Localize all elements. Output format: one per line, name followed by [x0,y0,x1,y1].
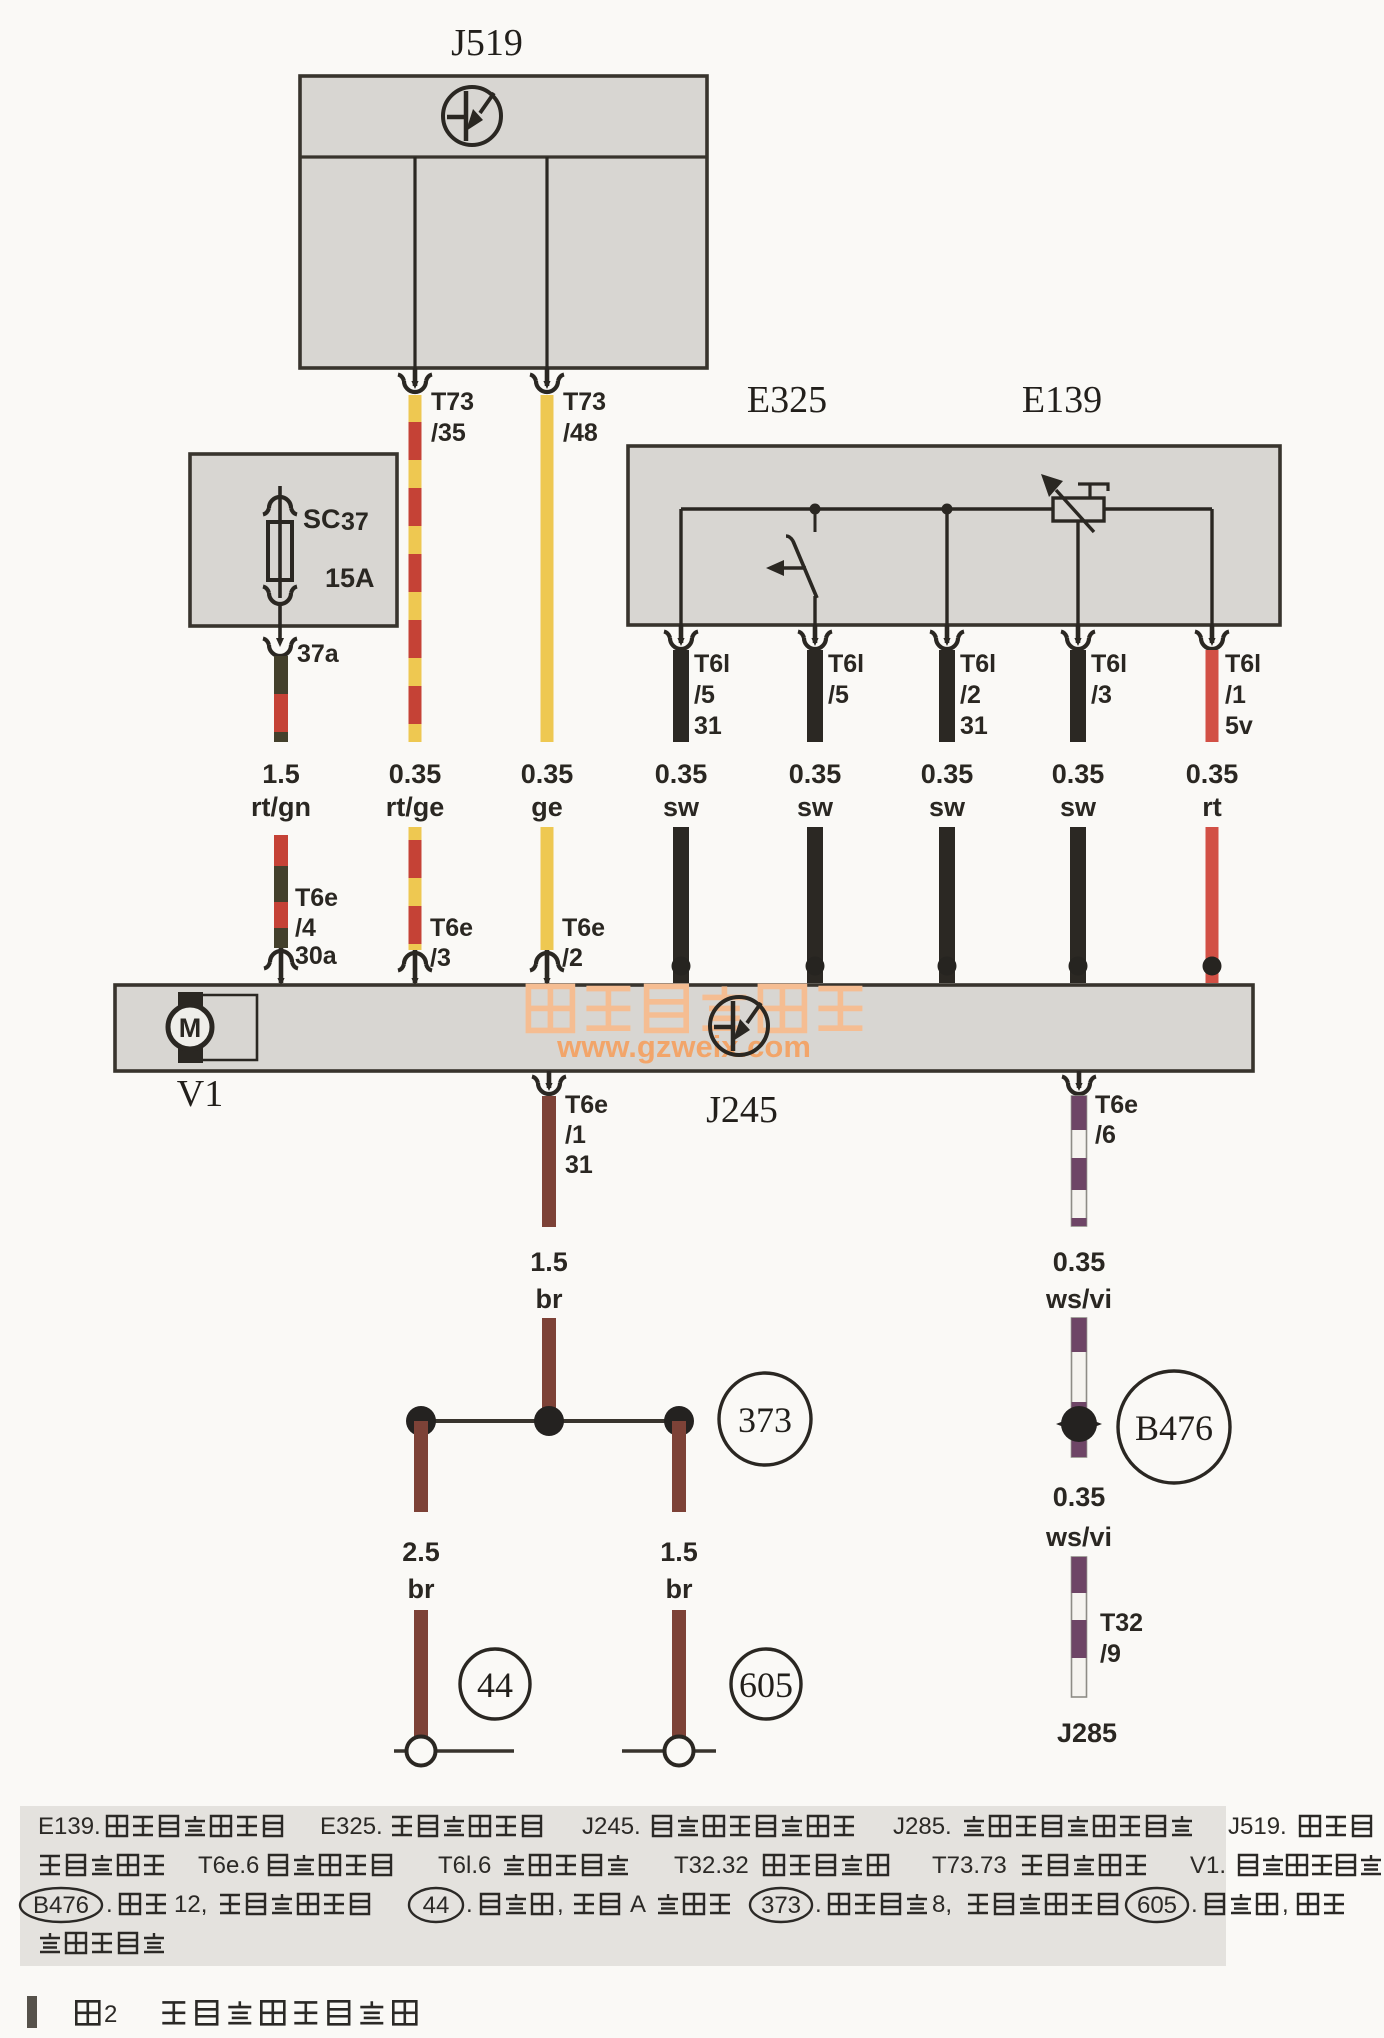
svg-text:sw: sw [663,792,700,822]
svg-text:rt/gn: rt/gn [251,792,311,822]
svg-text:T6l: T6l [1091,650,1127,678]
svg-text:1.5: 1.5 [660,1537,698,1567]
svg-text:T6e: T6e [430,914,473,942]
svg-text:T6e: T6e [562,914,605,942]
svg-text:0.35: 0.35 [1053,1247,1106,1277]
svg-text:T6l: T6l [960,650,996,678]
svg-text:B476: B476 [1135,1408,1213,1448]
svg-text:373: 373 [738,1400,792,1440]
svg-text:V1.: V1. [1190,1852,1226,1879]
svg-text:sw: sw [929,792,966,822]
svg-text:ws/vi: ws/vi [1045,1522,1112,1552]
svg-text:31: 31 [960,712,988,740]
svg-text:44: 44 [477,1665,513,1705]
svg-text:E325: E325 [747,379,827,421]
svg-text:T32: T32 [1100,1609,1143,1637]
svg-text:rt: rt [1202,792,1222,822]
svg-text:37a: 37a [297,640,340,668]
svg-text:rt/ge: rt/ge [386,792,445,822]
svg-text:0.35: 0.35 [655,759,708,789]
svg-text:5v: 5v [1225,712,1253,740]
svg-text:E325.: E325. [320,1813,383,1840]
svg-text:T32.32: T32.32 [674,1852,749,1879]
svg-text:/35: /35 [431,419,466,447]
svg-text:373: 373 [761,1892,801,1919]
svg-text:,: , [1282,1891,1289,1918]
svg-text:,: , [557,1891,564,1918]
svg-text:/2: /2 [960,681,981,709]
svg-text:www.gzweix.com: www.gzweix.com [556,1029,811,1064]
svg-text:ge: ge [531,792,563,822]
svg-text:0.35: 0.35 [1052,759,1105,789]
svg-text:.: . [106,1891,113,1918]
svg-text:0.35: 0.35 [521,759,574,789]
svg-text:V1: V1 [177,1073,223,1115]
svg-text:J519: J519 [451,22,523,64]
svg-text:/2: /2 [562,944,583,972]
svg-text:2: 2 [104,2001,117,2028]
svg-text:br: br [408,1574,435,1604]
svg-text:/48: /48 [563,419,598,447]
svg-text:T6l: T6l [1225,650,1261,678]
svg-text:0.35: 0.35 [1186,759,1239,789]
svg-text:30a: 30a [295,942,338,970]
svg-text:/3: /3 [430,944,451,972]
svg-text:/1: /1 [565,1121,586,1149]
svg-text:/4: /4 [295,914,316,942]
svg-text:T6e: T6e [295,884,338,912]
svg-text:37: 37 [341,508,369,536]
svg-text:2.5: 2.5 [402,1537,440,1567]
svg-text:T6l: T6l [694,650,730,678]
svg-text:J285: J285 [1057,1718,1117,1748]
svg-text:31: 31 [694,712,722,740]
svg-text:T73: T73 [563,388,606,416]
svg-text:1.5: 1.5 [262,759,300,789]
svg-text:br: br [536,1284,563,1314]
svg-text:sw: sw [1060,792,1097,822]
svg-text:sw: sw [797,792,834,822]
svg-text:0.35: 0.35 [1053,1482,1106,1512]
svg-text:8,: 8, [932,1891,952,1918]
svg-text:T73.73: T73.73 [932,1852,1007,1879]
svg-text:.: . [1191,1891,1198,1918]
svg-text:15A: 15A [325,563,375,593]
svg-text:31: 31 [565,1151,593,1179]
svg-text:0.35: 0.35 [921,759,974,789]
svg-text:.: . [466,1891,473,1918]
svg-text:ws/vi: ws/vi [1045,1284,1112,1314]
svg-text:/5: /5 [694,681,715,709]
svg-text:E139.: E139. [38,1813,101,1840]
svg-text:J519.: J519. [1228,1813,1287,1840]
svg-text:T6e: T6e [565,1091,608,1119]
svg-text:J245.: J245. [582,1813,641,1840]
svg-text:A: A [630,1891,646,1918]
svg-text:/5: /5 [828,681,849,709]
svg-text:M: M [179,1013,202,1043]
svg-text:E139: E139 [1022,379,1102,421]
svg-text:0.35: 0.35 [389,759,442,789]
svg-text:T6l: T6l [828,650,864,678]
svg-text:44: 44 [423,1892,450,1919]
svg-text:J245: J245 [706,1089,778,1131]
svg-text:B476: B476 [33,1892,89,1919]
svg-text:J285.: J285. [893,1813,952,1840]
svg-text:/9: /9 [1100,1640,1121,1668]
svg-text:T73: T73 [431,388,474,416]
svg-text:/1: /1 [1225,681,1246,709]
svg-text:SC: SC [303,504,341,534]
svg-text:12,: 12, [174,1891,207,1918]
svg-text:/6: /6 [1095,1121,1116,1149]
svg-text:T6e: T6e [1095,1091,1138,1119]
svg-text:0.35: 0.35 [789,759,842,789]
svg-text:br: br [666,1574,693,1604]
svg-text:T6l.6: T6l.6 [438,1852,491,1879]
svg-text:T6e.6: T6e.6 [198,1852,259,1879]
svg-text:605: 605 [739,1665,793,1705]
svg-text:1.5: 1.5 [530,1247,568,1277]
svg-text:605: 605 [1137,1892,1177,1919]
svg-text:.: . [815,1891,822,1918]
svg-text:/3: /3 [1091,681,1112,709]
